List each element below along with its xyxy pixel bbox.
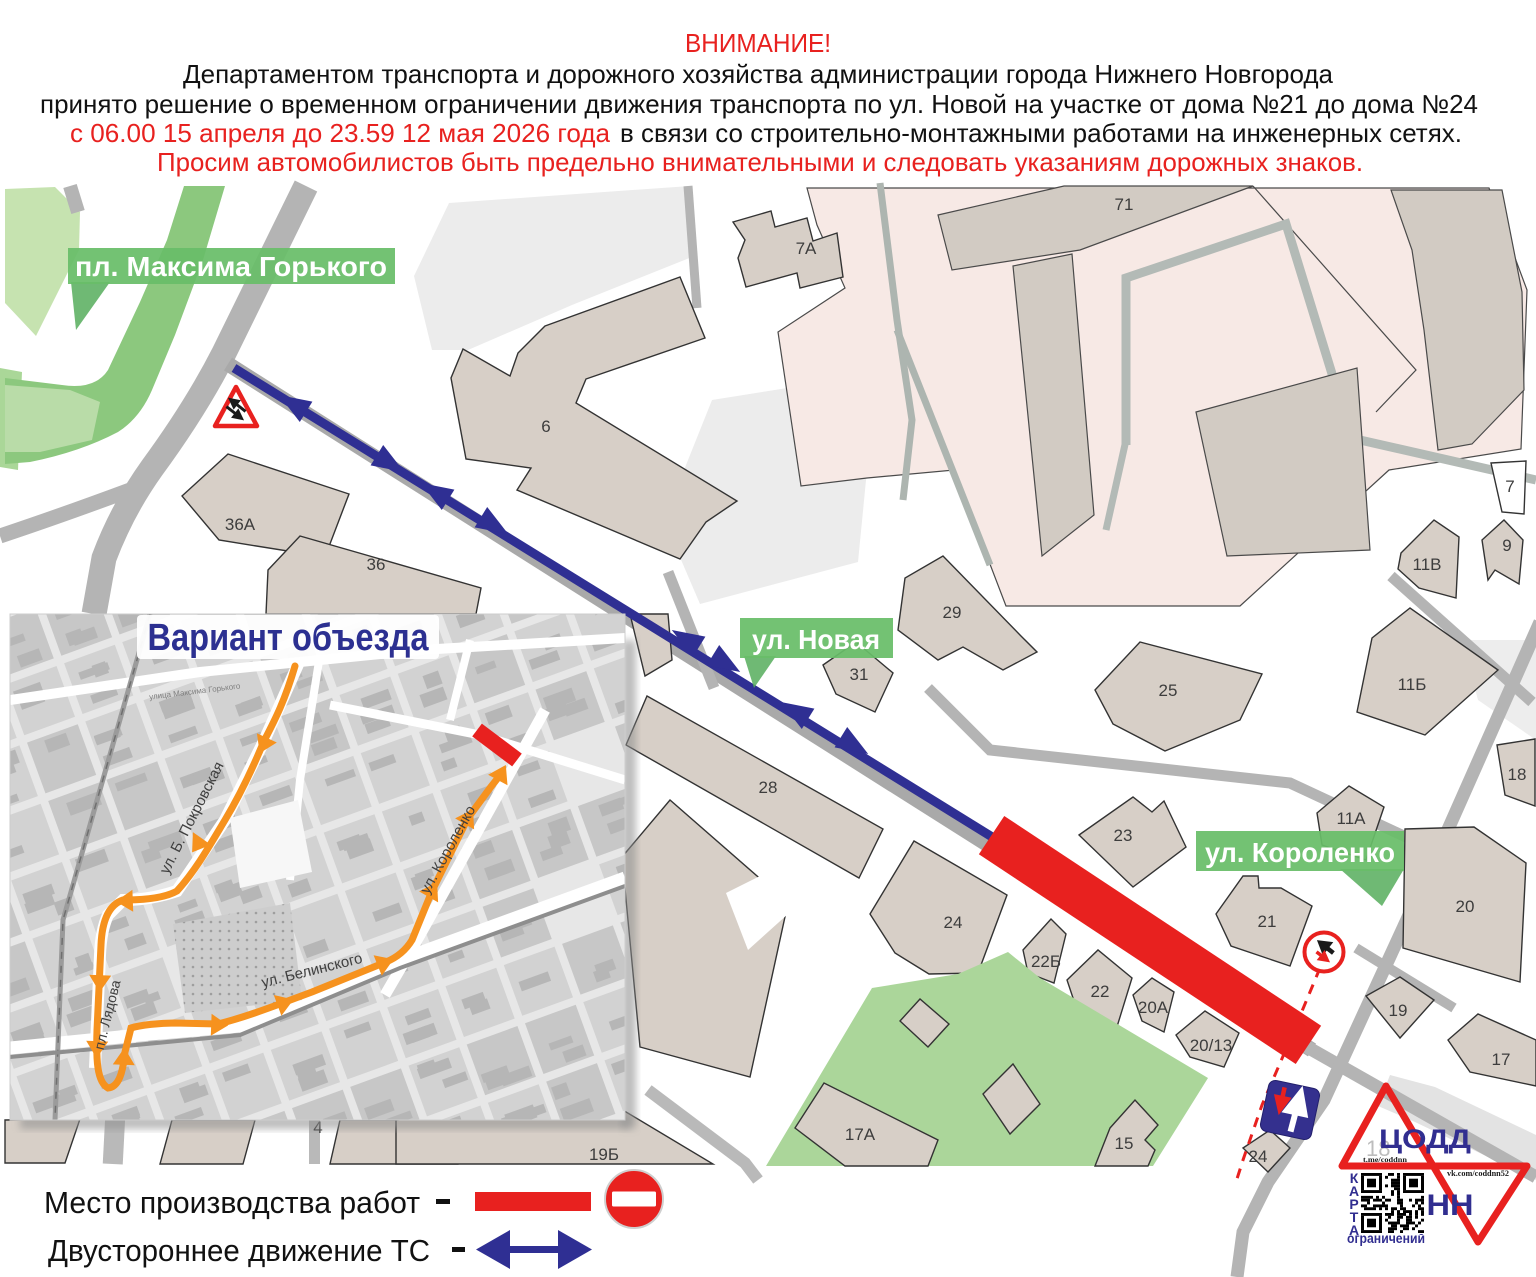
svg-text:с 06.00 15 апреля до 23.59 12: с 06.00 15 апреля до 23.59 12 мая 2026 г… [70, 118, 611, 148]
svg-text:31: 31 [850, 665, 869, 684]
svg-text:7: 7 [1505, 477, 1514, 496]
svg-text:20А: 20А [1138, 998, 1169, 1017]
svg-text:9: 9 [1502, 536, 1511, 555]
svg-text:t.me/coddnn: t.me/coddnn [1363, 1156, 1407, 1164]
svg-text:19: 19 [1389, 1001, 1408, 1020]
svg-text:21: 21 [1258, 912, 1277, 931]
svg-text:ВНИМАНИЕ!: ВНИМАНИЕ! [685, 28, 831, 58]
svg-text:vk.com/coddnn52: vk.com/coddnn52 [1447, 1169, 1509, 1178]
svg-text:ул. Новая: ул. Новая [752, 624, 880, 655]
svg-text:71: 71 [1115, 195, 1134, 214]
svg-text:36: 36 [367, 555, 386, 574]
svg-text:11Б: 11Б [1398, 675, 1427, 694]
svg-text:НН: НН [1427, 1189, 1474, 1222]
svg-text:принято решение о временном ог: принято решение о временном ограничении … [40, 89, 1478, 119]
svg-text:20/13: 20/13 [1190, 1036, 1233, 1055]
svg-text:в связи со строительно-монтажн: в связи со строительно-монтажными работа… [620, 118, 1462, 148]
svg-text:11А: 11А [1337, 809, 1367, 828]
svg-text:ЦОДД: ЦОДД [1379, 1124, 1471, 1154]
svg-text:пл. Максима Горького: пл. Максима Горького [75, 251, 387, 282]
svg-text:36А: 36А [225, 515, 256, 534]
svg-text:Департаментом транспорта и дор: Департаментом транспорта и дорожного хоз… [183, 59, 1334, 89]
svg-text:ул. Короленко: ул. Короленко [1205, 837, 1395, 868]
svg-text:18: 18 [1508, 765, 1527, 784]
svg-text:22: 22 [1091, 982, 1110, 1001]
svg-text:Вариант объезда: Вариант объезда [148, 617, 430, 659]
svg-text:15: 15 [1115, 1134, 1134, 1153]
svg-text:25: 25 [1159, 681, 1178, 700]
svg-text:17А: 17А [845, 1125, 876, 1144]
svg-text:28: 28 [759, 778, 778, 797]
svg-text:6: 6 [541, 417, 550, 436]
svg-text:24: 24 [944, 913, 963, 932]
svg-text:20: 20 [1456, 897, 1475, 916]
svg-text:17: 17 [1492, 1050, 1511, 1069]
svg-text:Место производства работ: Место производства работ [44, 1185, 420, 1220]
svg-text:19Б: 19Б [589, 1145, 619, 1164]
svg-text:22Б: 22Б [1031, 952, 1061, 971]
svg-text:7А: 7А [796, 239, 817, 258]
svg-text:24: 24 [1249, 1147, 1268, 1166]
svg-text:11В: 11В [1413, 555, 1442, 574]
svg-text:23: 23 [1114, 826, 1133, 845]
svg-text:Просим автомобилистов быть пре: Просим автомобилистов быть предельно вни… [157, 147, 1363, 177]
svg-text:Двустороннее движение ТС: Двустороннее движение ТС [48, 1233, 430, 1268]
svg-text:29: 29 [943, 603, 962, 622]
